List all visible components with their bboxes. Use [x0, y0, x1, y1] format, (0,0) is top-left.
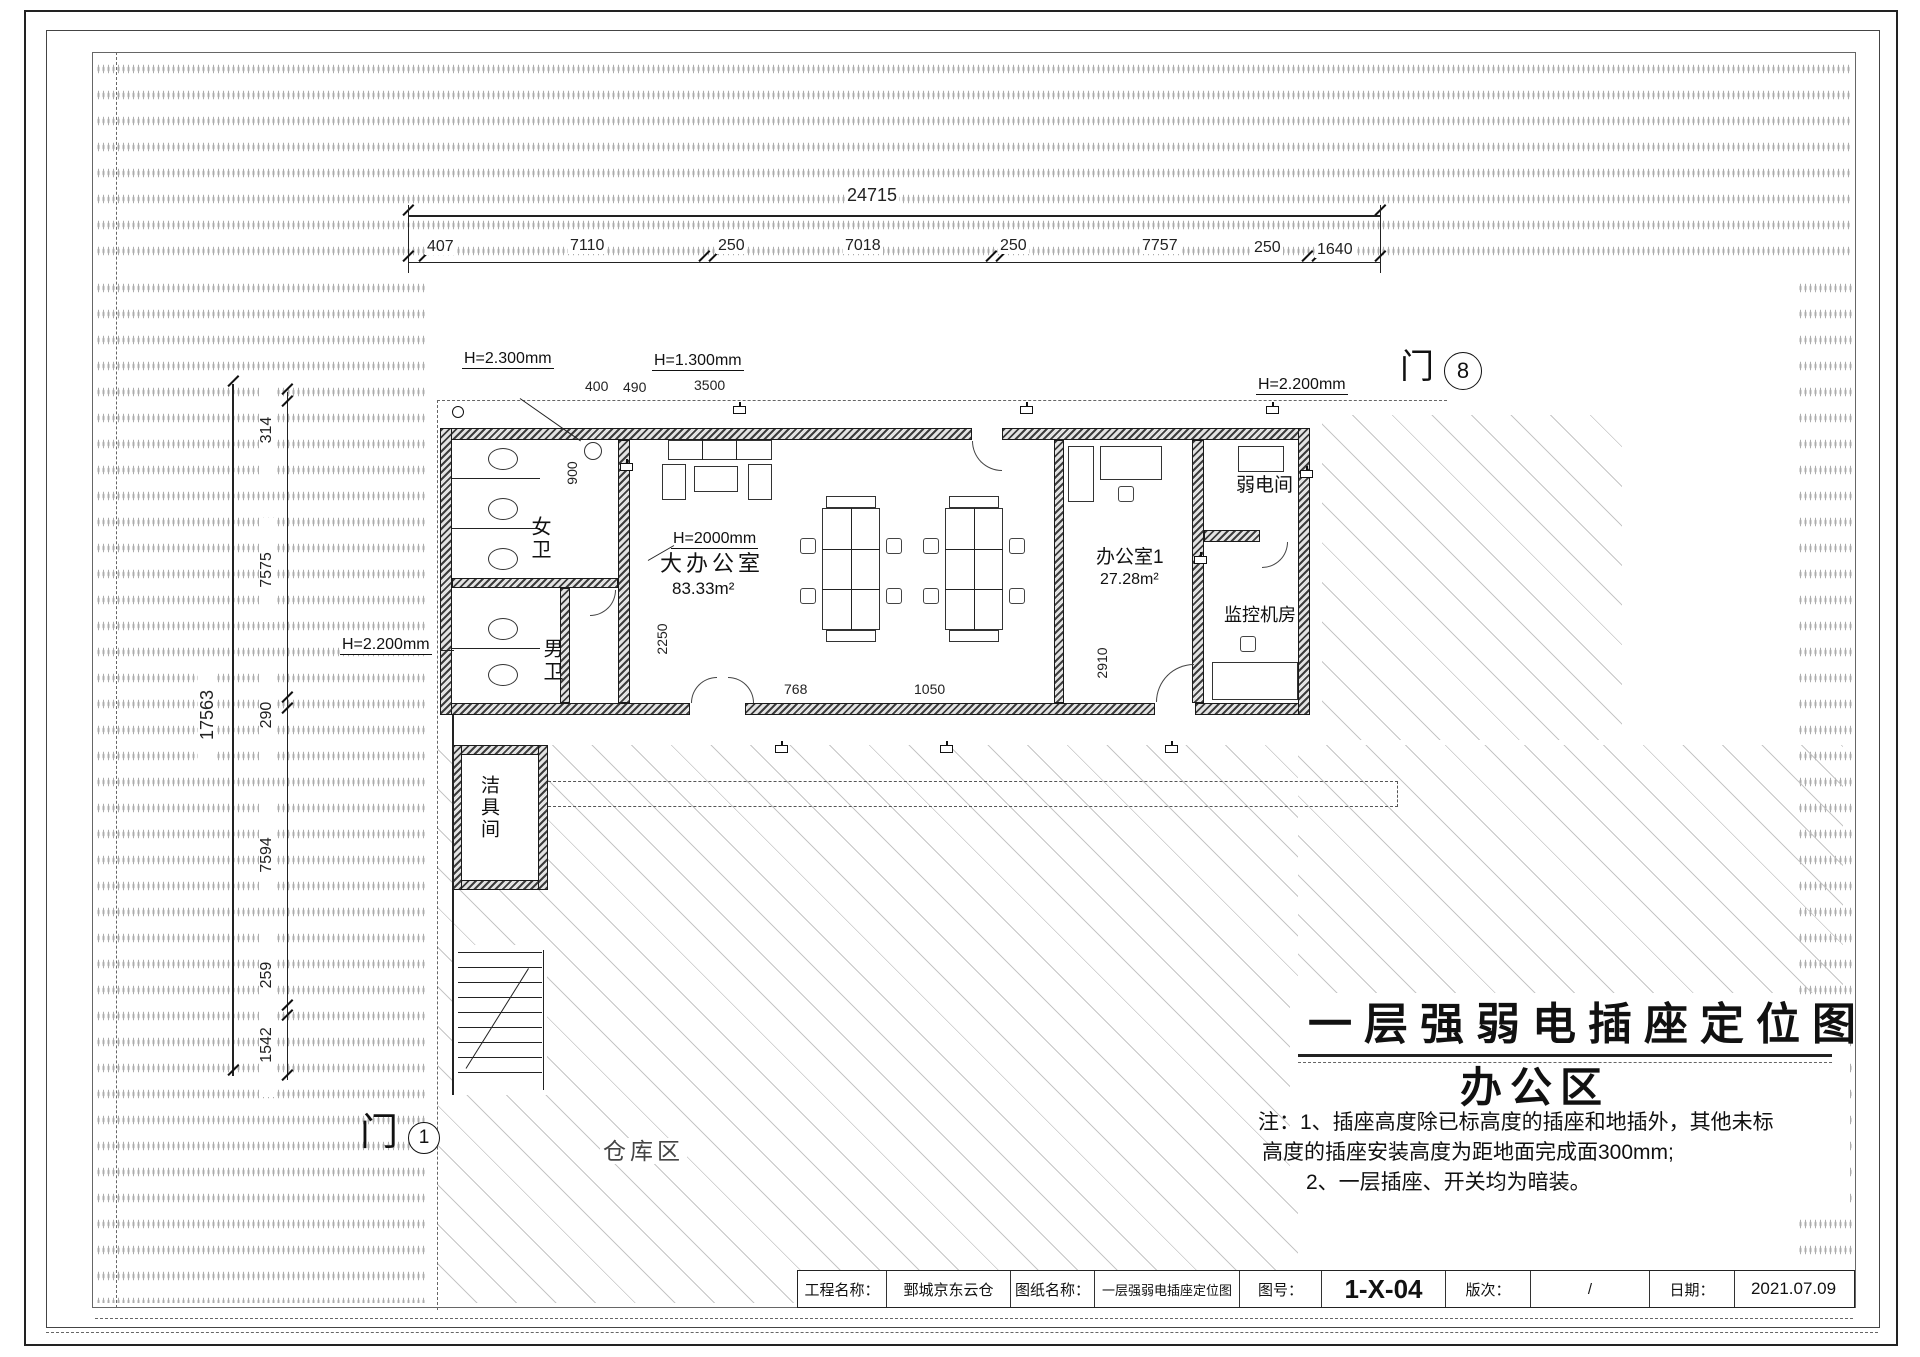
desk-endcap: [949, 630, 999, 642]
chair: [886, 588, 902, 604]
socket-icon: [620, 463, 633, 471]
wall-top-2: [1002, 428, 1310, 440]
titleblock-project-value: 鄄城京东云仓: [886, 1271, 1010, 1307]
note-line3: 2、一层插座、开关均为暗装。: [1306, 1172, 1591, 1194]
dim-top-seg: 1640: [1315, 242, 1355, 258]
wc-stall-line: [452, 528, 540, 529]
boundary-dashed-left: [437, 400, 438, 1310]
room-area-main-office: 83.33m²: [672, 580, 734, 598]
titleblock-date-label: 日期：: [1649, 1271, 1734, 1307]
dim-small-2250: 2250: [655, 607, 669, 671]
room-label-low-voltage: 弱电间: [1236, 476, 1293, 496]
drawing-zone: 办公区: [1460, 1066, 1610, 1110]
room-label-monitor: 监控机房: [1224, 606, 1296, 625]
socket-icon: [940, 745, 953, 753]
wc-stall-line: [452, 478, 540, 479]
desk-line: [945, 589, 1003, 590]
height-label-2200-right: H=2.200mm: [1256, 376, 1348, 395]
dim-small-900: 900: [565, 441, 579, 505]
room-label-office1: 办公室1: [1096, 548, 1164, 568]
dim-top-seg: 250: [716, 238, 747, 254]
wall-bottom-1: [440, 703, 690, 715]
toilet-fixture: [488, 498, 518, 520]
socket-icon: [1020, 406, 1033, 414]
dim-top-seg: 250: [998, 238, 1029, 254]
drawing-sheet: 24715 407 7110 250 7018 250 7757 250 164…: [0, 0, 1920, 1357]
titleblock-date-value: 2021.07.09: [1734, 1271, 1852, 1307]
wall-divider-lv-monitor: [1204, 530, 1260, 542]
dim-top-seg: 7757: [1140, 238, 1180, 254]
dim-line-top-chain: [408, 262, 1380, 263]
stair-step: [458, 997, 542, 998]
wall-janitor-top: [452, 745, 548, 755]
wall-top-1: [440, 428, 972, 440]
wall-divider-wc: [452, 578, 618, 588]
stair-step: [458, 1027, 542, 1028]
sofa-divider: [736, 440, 737, 460]
chair: [1118, 486, 1134, 502]
room-area-office1: 27.28m²: [1100, 572, 1159, 589]
border-dashed-bottom1: [95, 1318, 1853, 1319]
title-underline: [1298, 1054, 1832, 1057]
chair: [1009, 538, 1025, 554]
height-label-2200-left: H=2.200mm: [340, 636, 432, 655]
chair: [1240, 636, 1256, 652]
desk-line: [822, 549, 880, 550]
floor-hatch-main: [438, 745, 1298, 1303]
room-label-janitor: 洁具间: [478, 775, 498, 841]
dim-top-total: 24715: [845, 186, 899, 204]
sink-fixture: [584, 442, 602, 460]
zone-label-warehouse: 仓库区: [600, 1138, 687, 1164]
dim-left-seg: 1542: [259, 993, 275, 1097]
wc-stall-line: [452, 648, 540, 649]
sofa-left: [662, 464, 686, 500]
dim-small-490: 490: [621, 380, 648, 394]
dim-top-seg: 7110: [568, 238, 606, 254]
stair-step: [458, 1042, 542, 1043]
dim-left-seg: 290: [259, 663, 275, 767]
height-label-2300: H=2.300mm: [462, 350, 554, 369]
titleblock-sheet-label: 图纸名称：: [1010, 1271, 1094, 1307]
stair-step: [458, 952, 542, 953]
office1-cabinet: [1068, 446, 1094, 502]
dim-ext-line: [1380, 205, 1381, 273]
toilet-fixture: [488, 448, 518, 470]
chair: [800, 538, 816, 554]
note-line1: 注：1、插座高度除已标高度的插座和地插外，其他未标: [1258, 1112, 1774, 1134]
desk-line: [822, 589, 880, 590]
height-label-1300: H=1.300mm: [652, 352, 744, 371]
dim-small-3500: 3500: [692, 378, 727, 392]
stair-step: [458, 982, 542, 983]
desk-endcap: [826, 496, 876, 508]
door1-char: 门: [360, 1114, 398, 1154]
title-block: 工程名称： 鄄城京东云仓 图纸名称： 一层强弱电插座定位图 图号： 1-X-04…: [797, 1270, 1855, 1308]
drawing-title: 一层强弱电插座定位图: [1308, 1002, 1868, 1048]
sofa-back: [668, 440, 772, 460]
room-label-womens-wc: 女卫: [528, 516, 549, 562]
chair: [923, 538, 939, 554]
dim-small-2910: 2910: [1095, 631, 1109, 695]
socket-icon: [775, 745, 788, 753]
dim-small-768: 768: [782, 682, 809, 696]
wall-partition-wc: [618, 440, 630, 703]
lv-equipment-box: [1238, 446, 1284, 472]
chair: [1009, 588, 1025, 604]
stair-side: [543, 950, 544, 1090]
boundary-dashed-top: [437, 400, 1447, 401]
titleblock-revision-label: 版次：: [1445, 1271, 1530, 1307]
socket-icon: [1300, 470, 1313, 478]
door-top-char: 门: [1400, 350, 1434, 386]
sofa-divider: [702, 440, 703, 460]
dim-line-left-chain: [287, 392, 288, 1080]
dim-left-seg: 314: [259, 378, 275, 482]
wall-left: [440, 428, 452, 715]
dim-line-top-total: [408, 215, 1380, 217]
stair-step: [458, 1072, 542, 1073]
room-label-mens-wc: 男卫: [540, 638, 561, 684]
border-dashed-bottom2: [46, 1332, 1878, 1333]
socket-icon: [1194, 556, 1207, 564]
dim-top-seg: 407: [425, 239, 456, 255]
desk-line: [945, 549, 1003, 550]
socket-icon: [733, 406, 746, 414]
dim-line-left-total: [232, 384, 234, 1076]
titleblock-sheet-value: 一层强弱电插座定位图: [1094, 1271, 1239, 1307]
dim-top-seg: 250: [1252, 240, 1283, 256]
titleblock-project-label: 工程名称：: [798, 1271, 886, 1307]
dim-ext-line: [408, 205, 409, 273]
dim-left-seg: 7575: [259, 518, 275, 622]
door1-number-bubble: 1: [408, 1122, 440, 1154]
room-label-main-office: 大办公室: [660, 552, 764, 575]
wall-bottom-3: [1195, 703, 1310, 715]
socket-icon: [1165, 745, 1178, 753]
wall-bottom-2: [745, 703, 1155, 715]
title-underline-dashed: [1298, 1062, 1832, 1063]
dim-left-total: 17563: [198, 663, 216, 767]
toilet-fixture: [488, 618, 518, 640]
wall-partition-office: [1054, 440, 1064, 703]
dim-small-400: 400: [583, 379, 610, 393]
canopy-dashed-strip: [538, 781, 1398, 807]
sofa-right: [748, 464, 772, 500]
stair-step: [458, 967, 542, 968]
desk-endcap: [826, 630, 876, 642]
dim-small-1050: 1050: [912, 682, 947, 696]
floor-hatch-right-of-plan: [1322, 415, 1622, 740]
rack-hatch-top: [96, 56, 1852, 270]
height-label-2000: H=2000mm: [671, 530, 758, 549]
chair: [923, 588, 939, 604]
janitor-interior: [452, 745, 548, 890]
chair: [800, 588, 816, 604]
leader-2200-left: [440, 650, 454, 651]
socket-icon: [1266, 406, 1279, 414]
axis-bubble-8-number: 8: [1457, 358, 1469, 384]
axis-bubble-8: 8: [1444, 352, 1482, 390]
titleblock-revision-value: /: [1530, 1271, 1649, 1307]
note-line2: 高度的插座安装高度为距地面完成面300mm;: [1262, 1142, 1674, 1164]
toilet-fixture: [488, 664, 518, 686]
boundary-hook-circle: [452, 406, 464, 418]
titleblock-number-value: 1-X-04: [1321, 1271, 1445, 1307]
wall-edge-lower-left: [452, 715, 454, 1095]
office1-desk: [1100, 446, 1162, 480]
wall-janitor-bottom: [452, 880, 548, 890]
titleblock-number-label: 图号：: [1239, 1271, 1321, 1307]
toilet-fixture: [488, 548, 518, 570]
desk-midline: [851, 508, 852, 630]
door1-number: 1: [419, 1127, 430, 1149]
chair: [886, 538, 902, 554]
dim-top-seg: 7018: [843, 238, 883, 254]
coffee-table: [694, 466, 738, 492]
wall-janitor-right: [538, 745, 548, 890]
monitor-desk: [1212, 662, 1298, 700]
desk-midline: [974, 508, 975, 630]
dim-left-seg: 7594: [259, 803, 275, 907]
desk-endcap: [949, 496, 999, 508]
